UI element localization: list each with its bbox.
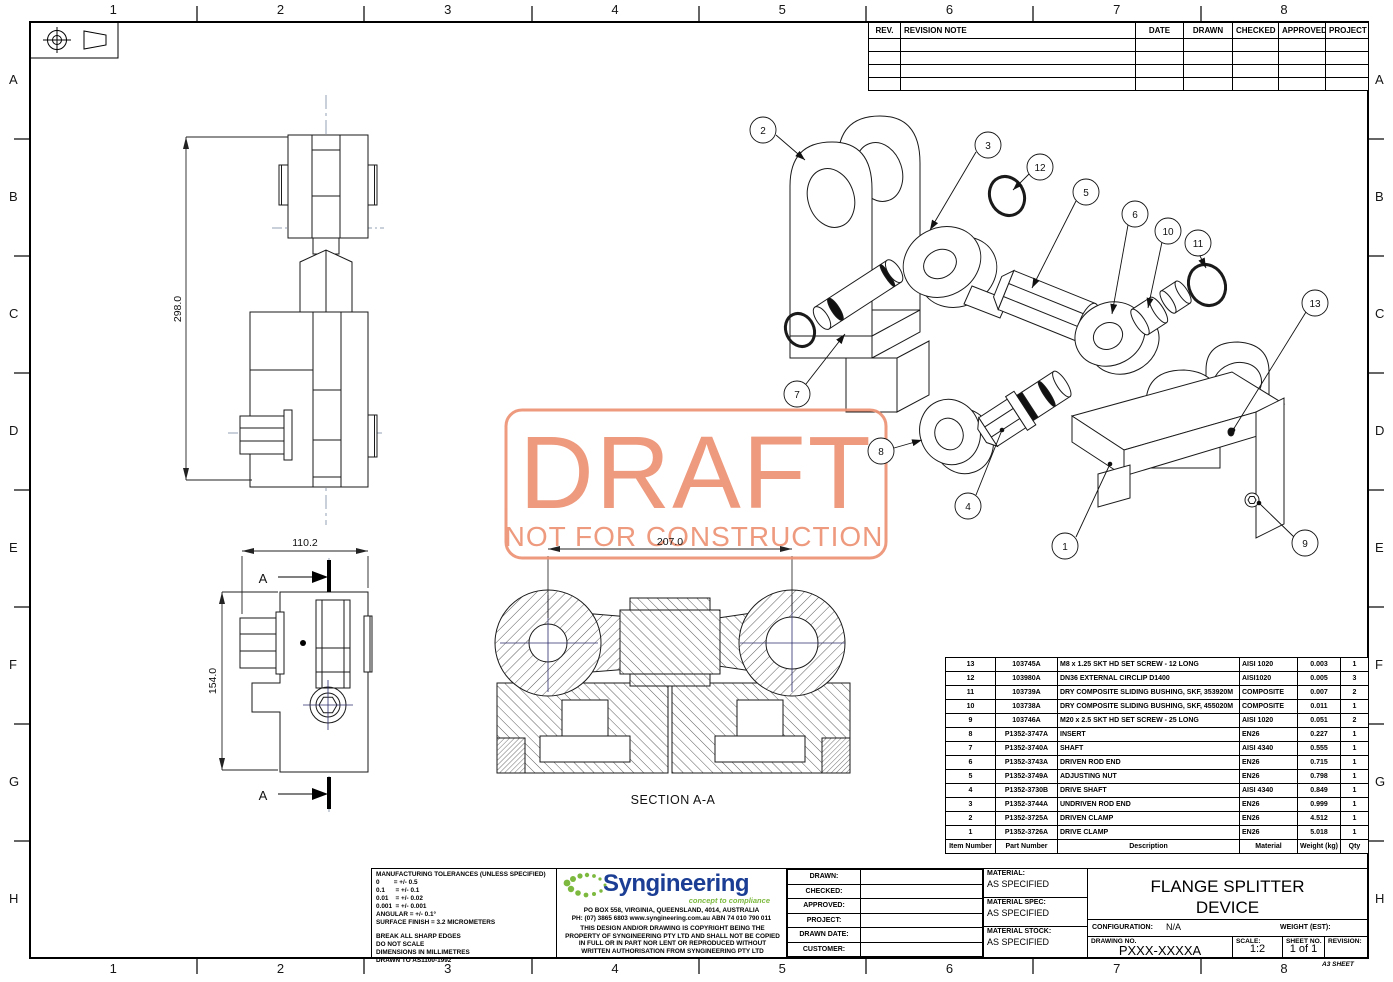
material-value: AS SPECIFIED [987, 908, 1084, 918]
bom-cell: 2 [1341, 714, 1369, 728]
tolerances-title: MANUFACTURING TOLERANCES (UNLESS SPECIFI… [376, 871, 552, 879]
third-angle-projection-icon [30, 22, 118, 58]
revision-header-cell: CHECKED [1233, 23, 1279, 39]
revision-header-row: REV.REVISION NOTEDATEDRAWNCHECKEDAPPROVE… [869, 23, 1369, 39]
svg-text:1: 1 [1062, 542, 1068, 553]
bom-cell: UNDRIVEN ROD END [1058, 798, 1240, 812]
section-letter-bottom: A [259, 788, 268, 803]
material-label: MATERIAL SPEC: [987, 899, 1084, 906]
tolerance-note: DO NOT SCALE [376, 941, 552, 949]
revision-empty-cell [1326, 39, 1369, 52]
configuration-label: CONFIGURATION: [1092, 924, 1153, 931]
bom-cell: 1 [1341, 812, 1369, 826]
revision-empty-cell [1279, 65, 1326, 78]
balloon-4: 4 [955, 493, 981, 519]
balloon-1: 1 [1052, 533, 1078, 559]
revision-empty-cell [869, 39, 901, 52]
signoff-label: PROJECT: [788, 913, 861, 928]
svg-text:8: 8 [878, 447, 884, 458]
bom-cell: 8 [946, 728, 996, 742]
revision-empty-cell [1233, 39, 1279, 52]
revision-empty-cell [901, 52, 1136, 65]
bom-cell: 4.512 [1298, 812, 1341, 826]
signoff-block: DRAWN:CHECKED:APPROVED:PROJECT:DRAWN DAT… [786, 868, 984, 958]
bom-cell: COMPOSITE [1240, 700, 1298, 714]
bom-cell: 0.227 [1298, 728, 1341, 742]
bom-cell: AISI 1020 [1240, 658, 1298, 672]
revision-empty-cell [901, 78, 1136, 91]
drawing-title-line1: FLANGE SPLITTER [1088, 876, 1367, 897]
balloon-10: 10 [1155, 218, 1181, 244]
revision-empty-cell [1326, 78, 1369, 91]
bom-row: 1P1352-3726ADRIVE CLAMPEN265.0181 [946, 826, 1369, 840]
signoff-row: APPROVED: [788, 899, 983, 914]
revision-empty-cell [1279, 52, 1326, 65]
revision-empty-cell [1279, 78, 1326, 91]
svg-text:6: 6 [1132, 210, 1138, 221]
bom-cell: EN26 [1240, 798, 1298, 812]
bom-cell: DRIVEN CLAMP [1058, 812, 1240, 826]
bom-cell: 1 [1341, 826, 1369, 840]
signoff-label: CHECKED: [788, 884, 861, 899]
balloon-5: 5 [1073, 179, 1099, 205]
tolerances-lines: 0 = +/- 0.50.1 = +/- 0.10.01 = +/- 0.020… [376, 879, 552, 927]
balloon-13: 13 [1302, 290, 1328, 316]
bom-row: 5P1352-3749AADJUSTING NUTEN260.7981 [946, 770, 1369, 784]
tolerance-note: BREAK ALL SHARP EDGES [376, 933, 552, 941]
bom-header-cell: Qty [1341, 840, 1369, 854]
bom-cell: 5 [946, 770, 996, 784]
bom-cell: 103739A [996, 686, 1058, 700]
bom-header-cell: Weight (kg) [1298, 840, 1341, 854]
signoff-table: DRAWN:CHECKED:APPROVED:PROJECT:DRAWN DAT… [787, 869, 983, 957]
tolerance-line: 0.01 = +/- 0.02 [376, 895, 552, 903]
bom-cell: 103738A [996, 700, 1058, 714]
svg-text:5: 5 [1083, 188, 1089, 199]
bom-cell: 0.798 [1298, 770, 1341, 784]
bom-row: 9103746AM20 x 2.5 SKT HD SET SCREW - 25 … [946, 714, 1369, 728]
company-name: Syngineering [603, 870, 749, 898]
section-view: SECTION A-A [495, 556, 850, 807]
material-section: MATERIAL:AS SPECIFIED [984, 869, 1087, 898]
bom-cell: AISI1020 [1240, 672, 1298, 686]
sheet-format-label: A3 SHEET [1322, 961, 1354, 968]
section-width-dim-text: 207.0 [657, 536, 683, 548]
bom-cell: 103745A [996, 658, 1058, 672]
drawing-no-cell: DRAWING NO. PXXX-XXXXA [1088, 937, 1233, 958]
company-block: Syngineering concept to compliance PO BO… [556, 868, 787, 958]
signoff-label: APPROVED: [788, 899, 861, 914]
bom-cell: DN36 EXTERNAL CIRCLIP D1400 [1058, 672, 1240, 686]
svg-text:7: 7 [794, 390, 800, 401]
balloon-7: 7 [784, 381, 810, 407]
bom-cell: 12 [946, 672, 996, 686]
sheet-no-cell: SHEET NO. 1 of 1 [1283, 937, 1325, 958]
bom-header-row: Item NumberPart NumberDescriptionMateria… [946, 840, 1369, 854]
title-block: FLANGE SPLITTER DEVICE CONFIGURATION: N/… [1087, 868, 1368, 958]
revision-empty-cell [1326, 65, 1369, 78]
company-address: PO BOX 558, VIRGINIA, QUEENSLAND, 4014, … [557, 907, 786, 914]
revision-empty-cell [1233, 78, 1279, 91]
revision-cell: REVISION: [1325, 937, 1367, 958]
bom-cell: 3 [1341, 672, 1369, 686]
bom-cell: 0.003 [1298, 658, 1341, 672]
svg-text:12: 12 [1034, 163, 1046, 174]
revision-empty-cell [1184, 65, 1233, 78]
bom-cell: P1352-3743A [996, 756, 1058, 770]
material-section: MATERIAL SPEC:AS SPECIFIED [984, 898, 1087, 927]
bom-cell: EN26 [1240, 770, 1298, 784]
bom-cell: 3 [946, 798, 996, 812]
signoff-row: CUSTOMER: [788, 942, 983, 957]
revision-empty-cell [1136, 52, 1184, 65]
bom-cell: DRY COMPOSITE SLIDING BUSHING, SKF, 3539… [1058, 686, 1240, 700]
material-label: MATERIAL: [987, 870, 1084, 877]
signoff-label: DRAWN: [788, 870, 861, 885]
signoff-label: DRAWN DATE: [788, 928, 861, 943]
revision-empty-row [869, 39, 1369, 52]
bom-cell: P1352-3730B [996, 784, 1058, 798]
revision-empty-cell [901, 65, 1136, 78]
signoff-value [861, 899, 983, 914]
revision-empty-cell [1279, 39, 1326, 52]
bom-header-cell: Part Number [996, 840, 1058, 854]
company-contact: PH: (07) 3865 6803 www.syngineering.com.… [557, 915, 786, 922]
drawing-sheet: 1122334455667788AABBCCDDEEFFGGHH [0, 0, 1393, 982]
signoff-row: DRAWN DATE: [788, 928, 983, 943]
material-value: AS SPECIFIED [987, 879, 1084, 889]
svg-text:13: 13 [1309, 299, 1321, 310]
signoff-value [861, 884, 983, 899]
bom-cell: 103980A [996, 672, 1058, 686]
side-width-dim-text: 110.2 [292, 537, 318, 549]
bom-row: 13103745AM8 x 1.25 SKT HD SET SCREW - 12… [946, 658, 1369, 672]
bom-cell: 2 [946, 812, 996, 826]
tolerance-line: 0 = +/- 0.5 [376, 879, 552, 887]
bom-table: 13103745AM8 x 1.25 SKT HD SET SCREW - 12… [945, 657, 1369, 854]
company-copyright: THIS DESIGN AND/OR DRAWING IS COPYRIGHT … [565, 925, 780, 955]
bom-cell: EN26 [1240, 826, 1298, 840]
revision-empty-row [869, 65, 1369, 78]
bom-cell: 5.018 [1298, 826, 1341, 840]
bom-cell: EN26 [1240, 728, 1298, 742]
balloon-11: 11 [1185, 230, 1211, 256]
weight-label: WEIGHT (EST): [1280, 924, 1331, 931]
material-section: MATERIAL STOCK:AS SPECIFIED [984, 927, 1087, 956]
signoff-value [861, 913, 983, 928]
revision-empty-cell [1233, 65, 1279, 78]
bom-cell: EN26 [1240, 812, 1298, 826]
bom-cell: DRIVE CLAMP [1058, 826, 1240, 840]
revision-empty-cell [1184, 39, 1233, 52]
revision-empty-cell [1326, 52, 1369, 65]
revision-empty-cell [1184, 52, 1233, 65]
bom-cell: 0.715 [1298, 756, 1341, 770]
revision-empty-cell [1184, 78, 1233, 91]
section-view-label: SECTION A-A [631, 793, 716, 807]
sheet-no-value: 1 of 1 [1283, 943, 1324, 955]
revision-empty-cell [1136, 78, 1184, 91]
svg-text:2: 2 [760, 126, 766, 137]
bom-cell: 1 [1341, 798, 1369, 812]
bom-cell: 7 [946, 742, 996, 756]
configuration-row: CONFIGURATION: N/A WEIGHT (EST): [1088, 920, 1367, 937]
revision-empty-cell [1136, 39, 1184, 52]
bom-cell: 0.007 [1298, 686, 1341, 700]
bom-cell: P1352-3726A [996, 826, 1058, 840]
bom-header-cell: Description [1058, 840, 1240, 854]
balloon-6: 6 [1122, 201, 1148, 227]
svg-text:4: 4 [965, 502, 971, 513]
configuration-value: N/A [1166, 922, 1181, 932]
balloon-2: 2 [750, 117, 776, 143]
scale-cell: SCALE: 1:2 [1233, 937, 1283, 958]
revision-empty-cell [1233, 52, 1279, 65]
bom-cell: 2 [1341, 686, 1369, 700]
bom-cell: 1 [1341, 770, 1369, 784]
revision-empty-row [869, 78, 1369, 91]
signoff-value [861, 870, 983, 885]
balloon-9: 9 [1292, 530, 1318, 556]
svg-text:3: 3 [985, 141, 991, 152]
bom-cell: 0.051 [1298, 714, 1341, 728]
tolerance-note: DRAWN TO AS1100-1992 [376, 957, 552, 965]
bom-cell: 1 [946, 826, 996, 840]
signoff-row: PROJECT: [788, 913, 983, 928]
revision-empty-cell [869, 65, 901, 78]
bom-cell: 0.011 [1298, 700, 1341, 714]
company-tagline: concept to compliance [689, 896, 770, 905]
bom-row: 3P1352-3744AUNDRIVEN ROD ENDEN260.9991 [946, 798, 1369, 812]
bom-cell: 1 [1341, 700, 1369, 714]
revision-header-cell: PROJECT [1326, 23, 1369, 39]
bom-cell: AISI 1020 [1240, 714, 1298, 728]
draft-watermark: DRAFT NOT FOR CONSTRUCTION [505, 410, 886, 558]
side-height-dim-text: 154.0 [207, 668, 219, 694]
bom-cell: EN26 [1240, 756, 1298, 770]
signoff-value [861, 928, 983, 943]
bom-cell: 13 [946, 658, 996, 672]
bom-cell: DRIVEN ROD END [1058, 756, 1240, 770]
bom-cell: 103746A [996, 714, 1058, 728]
bom-cell: P1352-3744A [996, 798, 1058, 812]
bom-cell: P1352-3725A [996, 812, 1058, 826]
tolerance-note: DIMENSIONS IN MILLIMETRES [376, 949, 552, 957]
drawing-no-value: PXXX-XXXXA [1088, 943, 1232, 958]
bom-cell: 1 [1341, 784, 1369, 798]
revision-empty-cell [869, 52, 901, 65]
revision-header-cell: REV. [869, 23, 901, 39]
tolerance-line: 0.001 = +/- 0.001 [376, 903, 552, 911]
drawing-title-line2: DEVICE [1088, 897, 1367, 918]
bom-header-cell: Material [1240, 840, 1298, 854]
bom-cell: 1 [1341, 728, 1369, 742]
bom-cell: DRIVE SHAFT [1058, 784, 1240, 798]
bom-cell: 4 [946, 784, 996, 798]
bom-row: 4P1352-3730BDRIVE SHAFTAISI 43400.8491 [946, 784, 1369, 798]
revision-header-cell: APPROVED [1279, 23, 1326, 39]
bom-cell: P1352-3749A [996, 770, 1058, 784]
bom-cell: P1352-3747A [996, 728, 1058, 742]
tolerance-line: ANGULAR = +/- 0.1° [376, 911, 552, 919]
bom-cell: 9 [946, 714, 996, 728]
bom-cell: 0.005 [1298, 672, 1341, 686]
bom-cell: 0.999 [1298, 798, 1341, 812]
bom-cell: AISI 4340 [1240, 784, 1298, 798]
tolerances-block: MANUFACTURING TOLERANCES (UNLESS SPECIFI… [371, 868, 557, 958]
revision-empty-row [869, 52, 1369, 65]
bom-cell: 10 [946, 700, 996, 714]
scale-value: 1:2 [1233, 943, 1282, 955]
material-block: MATERIAL:AS SPECIFIEDMATERIAL SPEC:AS SP… [983, 868, 1088, 958]
svg-text:11: 11 [1193, 239, 1204, 250]
drawing-title: FLANGE SPLITTER DEVICE [1088, 869, 1367, 920]
signoff-label: CUSTOMER: [788, 942, 861, 957]
section-letter-top: A [259, 571, 268, 586]
bom-cell: 1 [1341, 756, 1369, 770]
bom-cell: 6 [946, 756, 996, 770]
balloon-12: 12 [1027, 154, 1053, 180]
svg-text:9: 9 [1302, 539, 1308, 550]
drive-clamp-part [1072, 342, 1284, 538]
balloon-3: 3 [975, 132, 1001, 158]
side-view: 110.2 154.0 A A [207, 537, 372, 812]
bom-row: 2P1352-3725ADRIVEN CLAMPEN264.5121 [946, 812, 1369, 826]
revision-header-cell: REVISION NOTE [901, 23, 1136, 39]
revision-header-cell: DATE [1136, 23, 1184, 39]
bom-row: 11103739ADRY COMPOSITE SLIDING BUSHING, … [946, 686, 1369, 700]
svg-text:10: 10 [1162, 227, 1174, 238]
bom-cell: M8 x 1.25 SKT HD SET SCREW - 12 LONG [1058, 658, 1240, 672]
bom-cell: P1352-3740A [996, 742, 1058, 756]
tolerance-line: SURFACE FINISH = 3.2 MICROMETERS [376, 919, 552, 927]
bom-row: 8P1352-3747AINSERTEN260.2271 [946, 728, 1369, 742]
tolerances-notes: BREAK ALL SHARP EDGESDO NOT SCALEDIMENSI… [376, 933, 552, 965]
revision-empty-cell [901, 39, 1136, 52]
revision-header-cell: DRAWN [1184, 23, 1233, 39]
bom-cell: M20 x 2.5 SKT HD SET SCREW - 25 LONG [1058, 714, 1240, 728]
bom-row: 12103980ADN36 EXTERNAL CIRCLIP D1400AISI… [946, 672, 1369, 686]
material-label: MATERIAL STOCK: [987, 928, 1084, 935]
watermark-line2: NOT FOR CONSTRUCTION [505, 521, 884, 552]
revision-table: REV.REVISION NOTEDATEDRAWNCHECKEDAPPROVE… [868, 22, 1369, 91]
bom-cell: ADJUSTING NUT [1058, 770, 1240, 784]
bom-row: 10103738ADRY COMPOSITE SLIDING BUSHING, … [946, 700, 1369, 714]
tolerance-line: 0.1 = +/- 0.1 [376, 887, 552, 895]
bom-cell: COMPOSITE [1240, 686, 1298, 700]
watermark-line1: DRAFT [519, 415, 872, 530]
revision-empty-cell [869, 78, 901, 91]
bom-cell: 0.849 [1298, 784, 1341, 798]
bom-header-cell: Item Number [946, 840, 996, 854]
bom-cell: DRY COMPOSITE SLIDING BUSHING, SKF, 4550… [1058, 700, 1240, 714]
bom-row: 6P1352-3743ADRIVEN ROD ENDEN260.7151 [946, 756, 1369, 770]
bom-cell: 1 [1341, 742, 1369, 756]
front-view: 298.0 [172, 95, 384, 525]
front-height-dim-text: 298.0 [172, 296, 184, 322]
bom-row: 7P1352-3740ASHAFTAISI 43400.5551 [946, 742, 1369, 756]
bom-cell: INSERT [1058, 728, 1240, 742]
drawing-number-row: DRAWING NO. PXXX-XXXXA SCALE: 1:2 SHEET … [1088, 937, 1367, 958]
signoff-value [861, 942, 983, 957]
drive-shaft-part [971, 365, 1077, 453]
revision-empty-cell [1136, 65, 1184, 78]
revision-label: REVISION: [1328, 938, 1362, 945]
bom-cell: AISI 4340 [1240, 742, 1298, 756]
material-value: AS SPECIFIED [987, 937, 1084, 947]
bom-cell: SHAFT [1058, 742, 1240, 756]
bom-cell: 0.555 [1298, 742, 1341, 756]
bom-cell: 11 [946, 686, 996, 700]
bom-cell: 1 [1341, 658, 1369, 672]
signoff-row: DRAWN: [788, 870, 983, 885]
signoff-row: CHECKED: [788, 884, 983, 899]
balloon-8: 8 [868, 438, 894, 464]
